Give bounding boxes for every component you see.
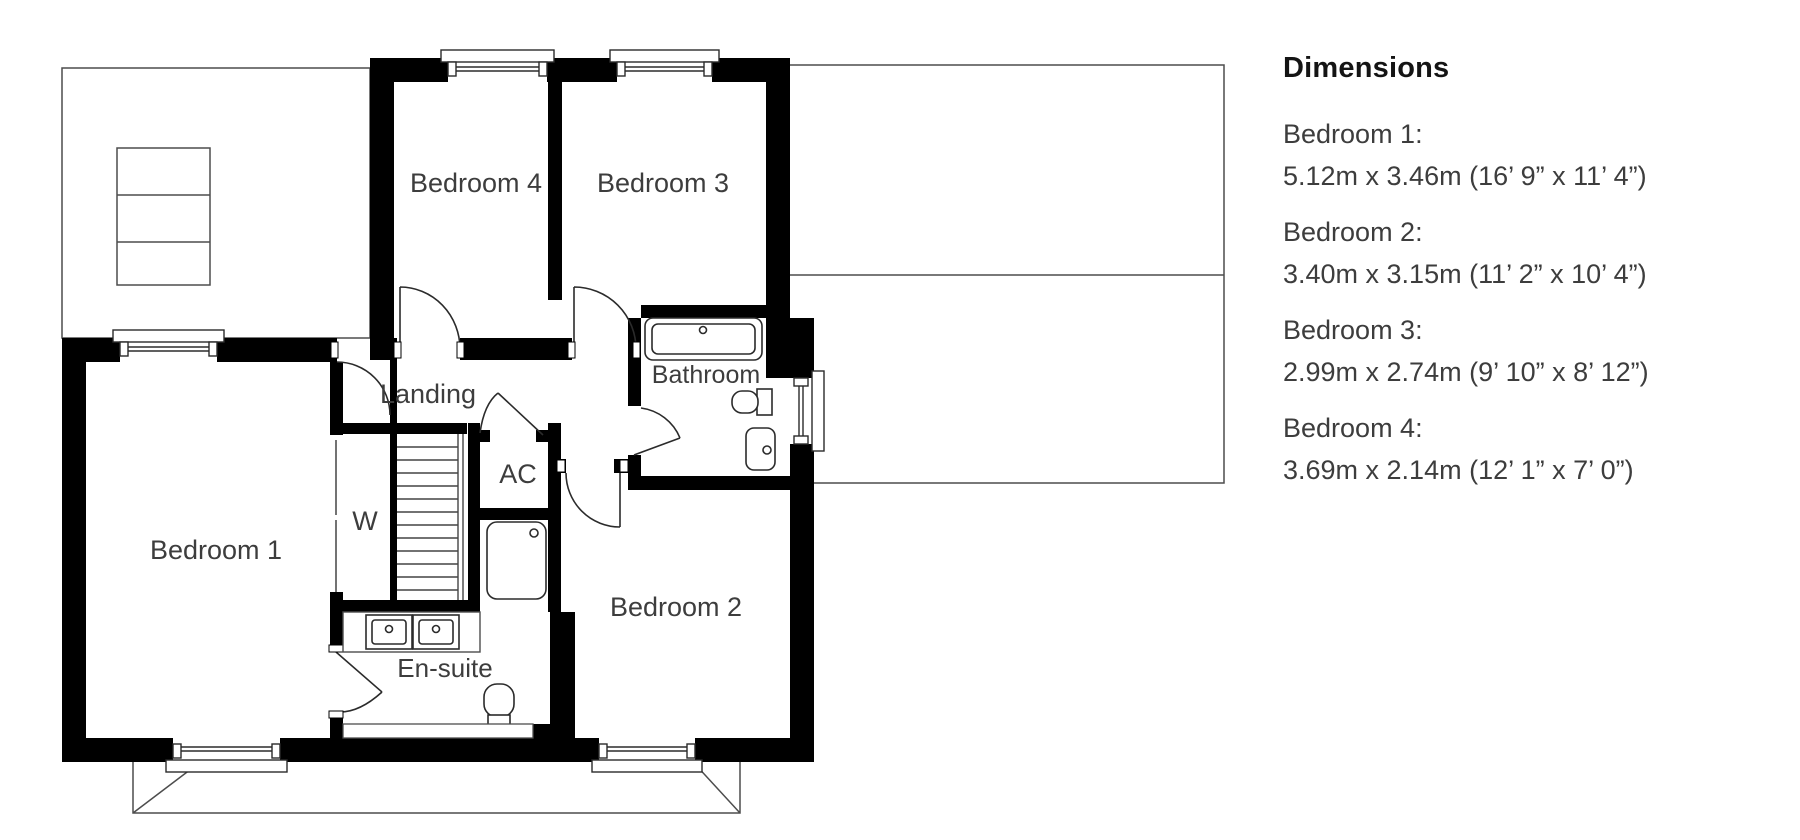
- dimension-label: Bedroom 2:: [1283, 211, 1703, 253]
- roof-outline-left: [62, 68, 370, 338]
- label-bedroom3: Bedroom 3: [597, 168, 729, 198]
- roof-outline-right: [790, 65, 1224, 483]
- dimension-entry-bedroom4: Bedroom 4: 3.69m x 2.14m (12’ 1” x 7’ 0”…: [1283, 407, 1703, 491]
- bathroom-toilet: [732, 389, 772, 415]
- dimension-label: Bedroom 3:: [1283, 309, 1703, 351]
- window-bedroom4: [441, 50, 554, 82]
- dimension-value: 3.40m x 3.15m (11’ 2” x 10’ 4”): [1283, 253, 1703, 295]
- window-bedroom2-bottom: [592, 738, 702, 772]
- ensuite-bulkhead: [343, 724, 533, 738]
- door-bedroom4: [400, 287, 460, 349]
- dimension-entry-bedroom2: Bedroom 2: 3.40m x 3.15m (11’ 2” x 10’ 4…: [1283, 211, 1703, 295]
- window-bedroom1-top: [113, 330, 224, 362]
- label-bedroom4: Bedroom 4: [410, 168, 542, 198]
- door-bathroom: [634, 408, 680, 455]
- dimension-entry-bedroom1: Bedroom 1: 5.12m x 3.46m (16’ 9” x 11’ 4…: [1283, 113, 1703, 197]
- label-wardrobe: W: [352, 506, 378, 536]
- dimension-label: Bedroom 4:: [1283, 407, 1703, 449]
- window-bedroom3: [610, 50, 719, 82]
- dimension-entry-bedroom3: Bedroom 3: 2.99m x 2.74m (9’ 10” x 8’ 12…: [1283, 309, 1703, 393]
- door-bedroom3: [574, 287, 636, 349]
- window-bedroom1-bottom: [166, 738, 287, 772]
- dimensions-panel: Dimensions Bedroom 1: 5.12m x 3.46m (16’…: [1283, 52, 1703, 505]
- label-bathroom: Bathroom: [652, 361, 760, 389]
- dimension-label: Bedroom 1:: [1283, 113, 1703, 155]
- label-bedroom2: Bedroom 2: [610, 592, 742, 622]
- door-bedroom2: [566, 473, 620, 527]
- door-ensuite: [336, 652, 382, 712]
- dimension-value: 3.69m x 2.14m (12’ 1” x 7’ 0”): [1283, 449, 1703, 491]
- window-bathroom: [790, 371, 824, 451]
- bathroom-sink: [746, 428, 775, 470]
- label-landing: Landing: [380, 379, 476, 409]
- storage-unit: [117, 148, 210, 285]
- stairs: [397, 434, 463, 600]
- label-ensuite: En-suite: [397, 653, 492, 683]
- dimensions-title: Dimensions: [1283, 52, 1703, 85]
- label-bedroom1: Bedroom 1: [150, 535, 282, 565]
- label-ac-cupboard: AC: [499, 459, 537, 489]
- dimension-value: 5.12m x 3.46m (16’ 9” x 11’ 4”): [1283, 155, 1703, 197]
- ensuite-toilet: [484, 684, 514, 725]
- door-ac-cupboard: [480, 393, 543, 435]
- ensuite-vanity: [343, 612, 480, 652]
- dimension-value: 2.99m x 2.74m (9’ 10” x 8’ 12”): [1283, 351, 1703, 393]
- bathtub: [645, 318, 762, 360]
- shower: [487, 522, 546, 599]
